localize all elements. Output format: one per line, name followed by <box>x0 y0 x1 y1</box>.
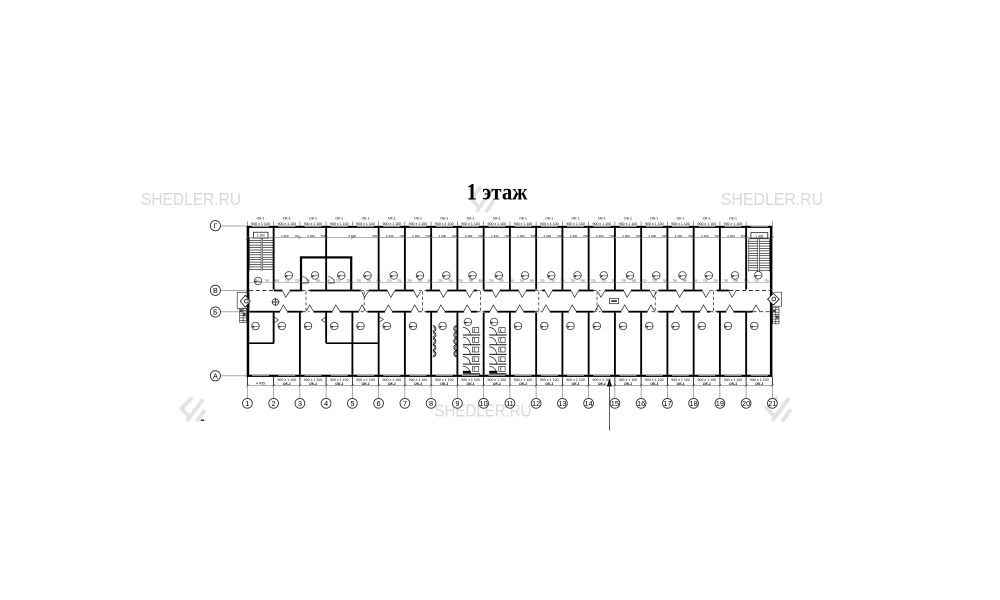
svg-text:18: 18 <box>689 399 697 408</box>
svg-text:ОК-1: ОК-1 <box>335 216 343 220</box>
svg-text:2 390: 2 390 <box>517 234 525 238</box>
svg-text:720: 720 <box>540 279 545 283</box>
svg-text:В: В <box>213 286 218 295</box>
svg-text:700: 700 <box>504 234 509 238</box>
svg-text:720: 720 <box>591 279 596 283</box>
svg-text:2 390: 2 390 <box>491 234 499 238</box>
svg-text:900 х 1 100: 900 х 1 100 <box>251 222 270 226</box>
svg-text:750: 750 <box>570 279 575 283</box>
svg-text:750: 750 <box>417 279 422 283</box>
svg-text:700: 700 <box>356 279 361 283</box>
svg-text:700: 700 <box>407 279 412 283</box>
svg-text:4 498: 4 498 <box>348 234 356 238</box>
svg-text:700: 700 <box>294 234 299 238</box>
svg-text:4 495: 4 495 <box>256 382 265 386</box>
svg-text:730: 730 <box>754 279 759 283</box>
svg-text:700: 700 <box>764 279 769 283</box>
svg-text:720: 720 <box>387 279 392 283</box>
svg-text:700: 700 <box>254 279 259 283</box>
svg-text:2 390: 2 390 <box>570 234 578 238</box>
svg-text:9: 9 <box>455 399 459 408</box>
svg-text:2 390: 2 390 <box>596 234 604 238</box>
svg-text:720: 720 <box>693 279 698 283</box>
svg-text:Г: Г <box>213 221 217 230</box>
svg-text:900 х 1 100: 900 х 1 100 <box>304 222 323 226</box>
svg-text:1: 1 <box>245 399 249 408</box>
svg-text:700: 700 <box>509 279 514 283</box>
svg-text:750: 750 <box>672 279 677 283</box>
svg-text:700: 700 <box>714 234 719 238</box>
svg-text:900 х 1 100: 900 х 1 100 <box>566 222 585 226</box>
svg-text:730: 730 <box>550 279 555 283</box>
svg-text:2 390: 2 390 <box>622 234 630 238</box>
svg-text:730: 730 <box>295 279 300 283</box>
svg-text:900: 900 <box>683 279 688 283</box>
svg-text:17: 17 <box>663 399 671 408</box>
svg-text:1 этаж: 1 этаж <box>467 180 528 206</box>
svg-text:ОК-1: ОК-1 <box>545 216 553 220</box>
svg-text:19: 19 <box>716 399 724 408</box>
svg-text:20: 20 <box>742 399 750 408</box>
svg-text:700: 700 <box>583 234 588 238</box>
svg-text:ОК-1: ОК-1 <box>362 216 370 220</box>
svg-text:900 х 1 100: 900 х 1 100 <box>409 222 428 226</box>
svg-text:700: 700 <box>478 234 483 238</box>
svg-text:21: 21 <box>768 399 776 408</box>
svg-text:730: 730 <box>397 279 402 283</box>
svg-text:900: 900 <box>479 279 484 283</box>
svg-text:700: 700 <box>611 279 616 283</box>
svg-text:900: 900 <box>581 279 586 283</box>
svg-text:900 х 1 100: 900 х 1 100 <box>645 222 664 226</box>
svg-text:730: 730 <box>652 279 657 283</box>
svg-text:700: 700 <box>372 234 377 238</box>
svg-text:12: 12 <box>532 399 540 408</box>
svg-text:700: 700 <box>662 234 667 238</box>
svg-text:700: 700 <box>530 234 535 238</box>
svg-text:ОК-1: ОК-1 <box>598 216 606 220</box>
svg-text:SHEDLER.RU: SHEDLER.RU <box>141 189 241 209</box>
svg-text:900 х 1 100: 900 х 1 100 <box>593 222 612 226</box>
svg-text:ОК-1: ОК-1 <box>519 216 527 220</box>
svg-text:900: 900 <box>530 279 535 283</box>
svg-text:720: 720 <box>744 279 749 283</box>
svg-text:700: 700 <box>320 234 325 238</box>
svg-text:900: 900 <box>734 279 739 283</box>
svg-text:700: 700 <box>557 234 562 238</box>
svg-text:730: 730 <box>448 279 453 283</box>
svg-text:720: 720 <box>642 279 647 283</box>
svg-text:2 390: 2 390 <box>386 234 394 238</box>
svg-text:900 х 1 100: 900 х 1 100 <box>698 222 717 226</box>
svg-text:Б: Б <box>213 308 218 317</box>
svg-text:900 х 1 100: 900 х 1 100 <box>724 222 743 226</box>
svg-text:700: 700 <box>425 234 430 238</box>
svg-text:ОК-1: ОК-1 <box>729 216 737 220</box>
svg-text:750: 750 <box>723 279 728 283</box>
svg-text:SHEDLER.RU: SHEDLER.RU <box>721 189 823 209</box>
svg-text:14: 14 <box>584 399 592 408</box>
svg-text:900 х 1 100: 900 х 1 100 <box>514 222 533 226</box>
svg-text:700: 700 <box>740 234 745 238</box>
svg-text:720: 720 <box>285 279 290 283</box>
svg-text:2 390: 2 390 <box>544 234 552 238</box>
svg-text:900: 900 <box>632 279 637 283</box>
svg-text:2 390: 2 390 <box>727 234 735 238</box>
svg-text:10: 10 <box>479 399 487 408</box>
svg-text:2 390: 2 390 <box>281 234 289 238</box>
svg-text:ОК-1: ОК-1 <box>467 216 475 220</box>
svg-text:ОК-1: ОК-1 <box>493 216 501 220</box>
svg-text:700: 700 <box>458 279 463 283</box>
svg-text:720: 720 <box>489 279 494 283</box>
svg-text:900 х 1 100: 900 х 1 100 <box>435 222 454 226</box>
svg-text:2 390: 2 390 <box>439 234 447 238</box>
svg-text:700: 700 <box>452 234 457 238</box>
svg-text:ОК-1: ОК-1 <box>572 216 580 220</box>
svg-text:900 х 1 100: 900 х 1 100 <box>619 222 638 226</box>
svg-text:900: 900 <box>275 279 280 283</box>
svg-text:900 х 1 100: 900 х 1 100 <box>488 222 507 226</box>
svg-text:3: 3 <box>298 399 302 408</box>
svg-text:700: 700 <box>399 234 404 238</box>
svg-text:900 х 1 100: 900 х 1 100 <box>461 222 480 226</box>
svg-text:ОК-1: ОК-1 <box>440 216 448 220</box>
svg-text:13: 13 <box>558 399 566 408</box>
svg-text:15: 15 <box>611 399 619 408</box>
svg-text:900 х 1 100: 900 х 1 100 <box>356 222 375 226</box>
svg-text:700: 700 <box>688 234 693 238</box>
svg-text:ОК-1: ОК-1 <box>309 216 317 220</box>
svg-text:750: 750 <box>264 279 269 283</box>
svg-text:900: 900 <box>326 279 331 283</box>
svg-text:700: 700 <box>713 279 718 283</box>
svg-text:4: 4 <box>324 399 328 408</box>
svg-text:2 390: 2 390 <box>649 234 657 238</box>
svg-text:720: 720 <box>438 279 443 283</box>
svg-text:2: 2 <box>272 399 276 408</box>
svg-text:900 х 1 100: 900 х 1 100 <box>383 222 402 226</box>
svg-text:900 х 1 100: 900 х 1 100 <box>671 222 690 226</box>
svg-text:900 х 1 100: 900 х 1 100 <box>540 222 559 226</box>
svg-text:ОК-1: ОК-1 <box>414 216 422 220</box>
svg-text:2 390: 2 390 <box>675 234 683 238</box>
svg-text:5: 5 <box>350 399 354 408</box>
svg-text:ОК-1: ОК-1 <box>257 216 265 220</box>
svg-text:ОК-1: ОК-1 <box>283 216 291 220</box>
svg-text:700: 700 <box>305 279 310 283</box>
svg-text:750: 750 <box>366 279 371 283</box>
svg-text:ОК-1: ОК-1 <box>388 216 396 220</box>
svg-text:750: 750 <box>315 279 320 283</box>
svg-text:730: 730 <box>346 279 351 283</box>
svg-text:750: 750 <box>468 279 473 283</box>
svg-text:А: А <box>213 371 218 380</box>
svg-text:750: 750 <box>621 279 626 283</box>
svg-text:900: 900 <box>377 279 382 283</box>
svg-text:720: 720 <box>336 279 341 283</box>
svg-text:2 390: 2 390 <box>701 234 709 238</box>
svg-text:7: 7 <box>403 399 407 408</box>
svg-text:700: 700 <box>560 279 565 283</box>
svg-text:730: 730 <box>601 279 606 283</box>
svg-text:2 390: 2 390 <box>307 234 315 238</box>
svg-text:750: 750 <box>519 279 524 283</box>
svg-text:ОК-1: ОК-1 <box>703 216 711 220</box>
svg-text:11: 11 <box>506 399 514 408</box>
svg-text:730: 730 <box>499 279 504 283</box>
svg-text:8: 8 <box>429 399 433 408</box>
svg-text:900 х 1 100: 900 х 1 100 <box>278 222 297 226</box>
svg-text:700: 700 <box>635 234 640 238</box>
svg-text:900 х 1 100: 900 х 1 100 <box>330 222 349 226</box>
svg-text:2 390: 2 390 <box>465 234 473 238</box>
svg-text:700: 700 <box>609 234 614 238</box>
svg-text:16: 16 <box>637 399 645 408</box>
svg-text:730: 730 <box>703 279 708 283</box>
svg-text:2 390: 2 390 <box>412 234 420 238</box>
svg-text:1 300: 1 300 <box>257 234 265 238</box>
svg-text:6: 6 <box>377 399 381 408</box>
svg-text:900: 900 <box>428 279 433 283</box>
svg-text:ОК-1: ОК-1 <box>650 216 658 220</box>
svg-text:700: 700 <box>662 279 667 283</box>
svg-text:ОК-1: ОК-1 <box>624 216 632 220</box>
svg-text:ОК-1: ОК-1 <box>677 216 685 220</box>
